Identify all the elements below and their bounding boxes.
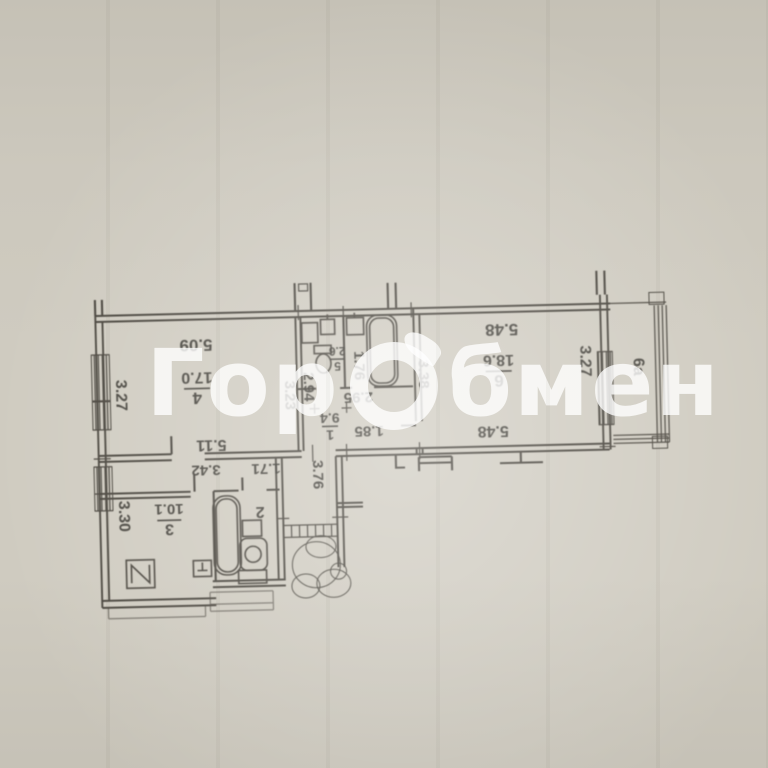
dim-room4-top: 5.09 xyxy=(179,335,213,355)
dim-kitchen-top: 3.42 xyxy=(191,461,221,479)
dim-hall-185: 1.85 xyxy=(354,422,384,440)
floorplan-photo: 5.09 5.11 3.27 3.23 2.94 1.76 2.95 1.85 … xyxy=(0,0,768,768)
dim-corridor-376: 3.76 xyxy=(309,460,327,490)
balcony-label: 6а xyxy=(629,358,646,376)
dim-room6-left: 3.38 xyxy=(414,359,432,389)
dimension-ticks xyxy=(90,297,617,523)
room4-area: 17.0 xyxy=(181,368,213,386)
kitchen-fixtures xyxy=(126,558,212,588)
room1-label: 1 9.4 xyxy=(320,410,340,443)
room4-label: 4 17.0 xyxy=(181,368,213,408)
dim-wc-width: 2.94 xyxy=(300,372,318,402)
room2-number: 2 xyxy=(255,503,264,520)
dim-hall-295: 2.95 xyxy=(344,388,374,406)
room5-label: 5 2.6 xyxy=(328,344,346,373)
floorplan-svg: 5.09 5.11 3.27 3.23 2.94 1.76 2.95 1.85 … xyxy=(0,0,768,768)
room6-area: 18.6 xyxy=(483,351,515,369)
room5-number: 5 xyxy=(334,359,341,373)
dim-bath-width: 1.76 xyxy=(350,351,368,381)
dim-kitchen-left: 3.30 xyxy=(115,501,133,533)
floorplan-drawing: 5.09 5.11 3.27 3.23 2.94 1.76 2.95 1.85 … xyxy=(0,0,768,768)
dim-room4-left: 3.27 xyxy=(112,380,130,412)
dim-room6-bottom: 5.48 xyxy=(477,422,509,440)
room5-area: 2.6 xyxy=(328,344,345,358)
dim-room6-right: 3.27 xyxy=(576,345,594,377)
room3-area: 10.1 xyxy=(154,500,184,518)
room6-label: 6 18.6 xyxy=(483,351,515,391)
room3-label: 3 10.1 xyxy=(154,500,184,538)
entrance-door xyxy=(283,524,337,537)
room1-number: 1 xyxy=(326,427,334,443)
wc-fixtures xyxy=(301,314,335,373)
dim-corridor-171: 1.71 xyxy=(251,460,281,478)
shaft-mark xyxy=(299,284,308,291)
dim-room6-top: 5.48 xyxy=(485,320,519,340)
room3-number: 3 xyxy=(165,520,174,537)
outer-walls xyxy=(95,294,617,607)
lower-balconies xyxy=(108,591,274,619)
labels: 5.09 5.11 3.27 3.23 2.94 1.76 2.95 1.85 … xyxy=(111,317,651,539)
room6-number: 6 xyxy=(494,371,504,390)
room1-area: 9.4 xyxy=(320,410,340,426)
erasure-blob xyxy=(291,535,351,598)
room4-number: 4 xyxy=(192,388,202,407)
dim-room4-bottom: 5.11 xyxy=(196,436,227,454)
dim-room4-right: 3.23 xyxy=(281,381,299,411)
